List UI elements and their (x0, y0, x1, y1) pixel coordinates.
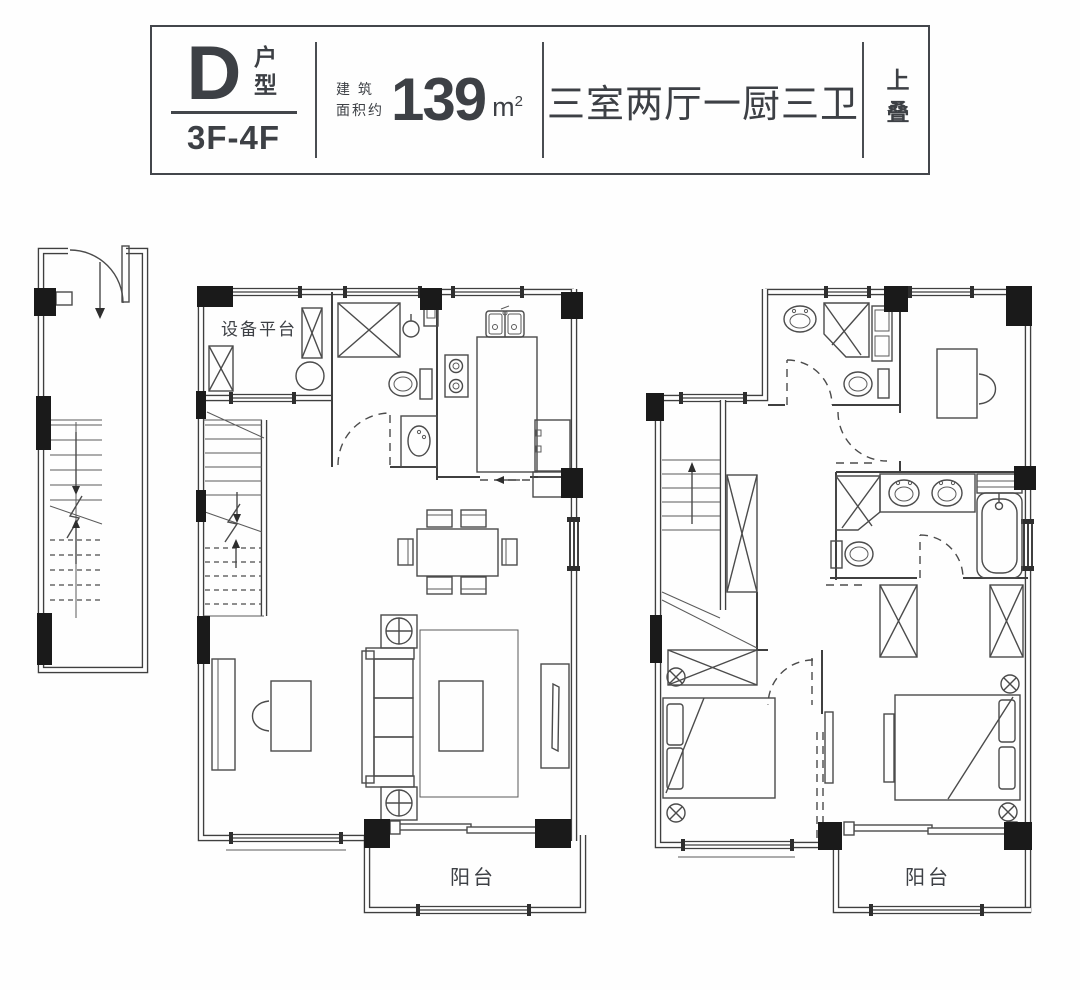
washer (296, 362, 324, 390)
door-swing-arc (920, 535, 963, 578)
window (224, 286, 302, 298)
balcony-upper: 阳台 (844, 822, 1017, 916)
window (416, 904, 531, 916)
floor-plan-drawing: 设备平台 (0, 0, 1080, 990)
window (567, 517, 580, 571)
kitchen (445, 306, 570, 497)
gas-stove (445, 355, 468, 397)
wash-basin (403, 321, 419, 337)
window (226, 832, 346, 850)
door-leaf (825, 712, 833, 783)
tv (552, 684, 559, 751)
window (869, 904, 984, 916)
bedroom-2 (884, 675, 1020, 821)
sofa (362, 651, 374, 783)
balcony-label-upper: 阳台 (905, 866, 951, 889)
sliding-door (854, 825, 932, 831)
door-swing-arc (838, 412, 887, 461)
dining-table (398, 510, 517, 594)
cabinet (212, 659, 235, 770)
floorplan-poster: D 户型 3F-4F 建 筑 面积约 139 m2 三室两厅一厨三卫 上叠 (0, 0, 1080, 990)
equipment-platform-label: 设备平台 (221, 320, 297, 339)
dresser (884, 714, 894, 782)
kitchen-counter (477, 337, 537, 472)
chair (253, 701, 270, 731)
entry-staircase (34, 246, 145, 670)
sliding-door (399, 824, 471, 830)
chair (979, 374, 996, 404)
window (679, 392, 747, 404)
upper-floor-plan: 阳台 (646, 286, 1036, 916)
balcony-label-lower: 阳台 (450, 866, 496, 889)
vanity (880, 474, 975, 512)
living-room (212, 615, 569, 820)
window (1021, 519, 1034, 571)
window (343, 286, 422, 298)
window (824, 286, 871, 298)
toilet (420, 369, 432, 399)
door-swing-arc (787, 360, 832, 405)
stair-break-line (67, 496, 82, 538)
lower-floor-plan: 设备平台 (196, 286, 583, 916)
rug (420, 630, 518, 797)
entry-arrow (495, 476, 504, 484)
door-swing-arc (70, 250, 123, 303)
staircase-lower (205, 412, 264, 604)
master-bathroom (831, 474, 1022, 578)
window (451, 286, 524, 298)
desk (271, 681, 311, 751)
balcony-lower: 阳台 (390, 821, 548, 916)
bedroom-1 (663, 658, 833, 822)
desk (937, 349, 977, 418)
bathroom-upper (784, 303, 892, 405)
door-leaf (122, 246, 129, 302)
window (908, 286, 974, 298)
entry-arrow (95, 308, 105, 319)
bathroom-lower (338, 303, 438, 467)
staircase-upper (662, 460, 757, 648)
equipment-platform: 设备平台 (209, 308, 324, 391)
tv-cabinet (541, 664, 569, 768)
door-swing-arc (338, 413, 390, 465)
coffee-table (439, 681, 483, 751)
window (678, 839, 795, 857)
stair-treads (44, 420, 102, 618)
toilet (878, 369, 889, 398)
window (229, 392, 296, 404)
